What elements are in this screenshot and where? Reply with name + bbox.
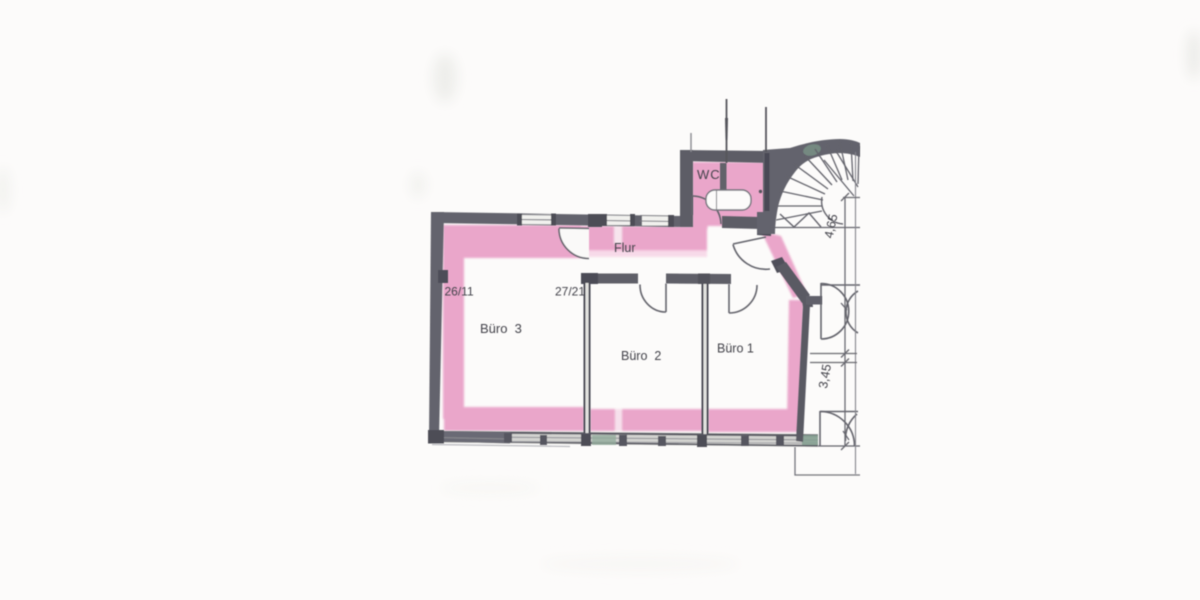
svg-text:WC: WC: [697, 167, 721, 182]
svg-text:27/21: 27/21: [555, 285, 585, 299]
svg-text:Büro 2: Büro 2: [621, 349, 661, 363]
svg-text:Büro 3: Büro 3: [480, 321, 522, 336]
svg-text:26/11: 26/11: [445, 285, 474, 299]
svg-text:Büro 1: Büro 1: [717, 342, 754, 356]
svg-text:4,65: 4,65: [822, 213, 841, 240]
svg-text:Flur: Flur: [614, 241, 636, 255]
svg-text:3,45: 3,45: [816, 363, 834, 389]
